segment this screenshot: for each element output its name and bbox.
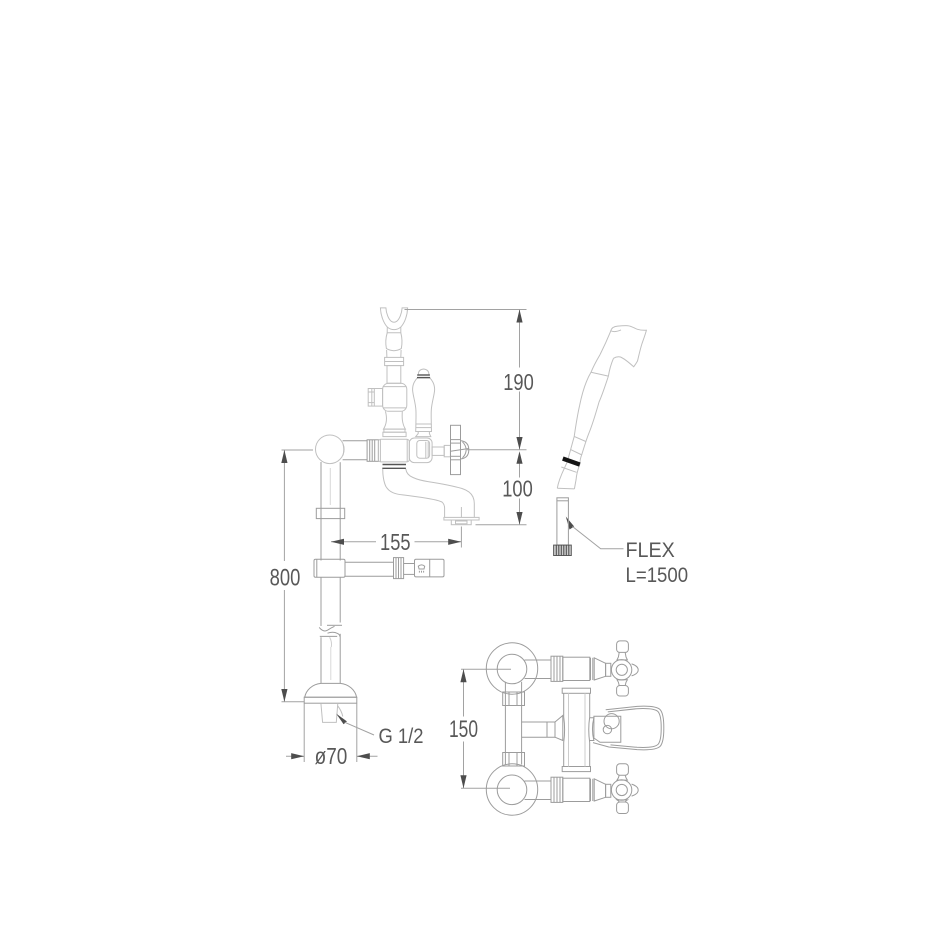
svg-text:150: 150 <box>449 716 478 743</box>
svg-text:190: 190 <box>503 369 534 395</box>
svg-text:155: 155 <box>380 529 411 555</box>
svg-text:100: 100 <box>502 475 533 501</box>
svg-text:800: 800 <box>270 565 301 592</box>
svg-text:L=1500: L=1500 <box>626 564 689 587</box>
svg-text:FLEX: FLEX <box>626 539 675 562</box>
svg-text:ø70: ø70 <box>315 743 348 769</box>
svg-text:G 1/2: G 1/2 <box>379 724 424 748</box>
